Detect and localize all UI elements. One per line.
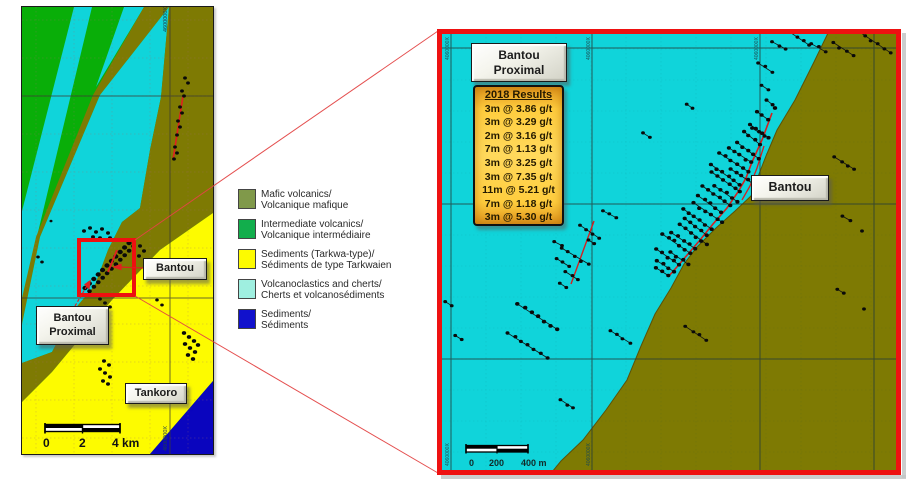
- svg-text:200: 200: [489, 458, 504, 468]
- svg-text:4060000X: 4060000X: [754, 37, 760, 60]
- svg-text:4600000X: 4600000X: [163, 7, 169, 32]
- svg-text:0: 0: [469, 458, 474, 468]
- svg-text:4060000X: 4060000X: [445, 37, 451, 60]
- svg-text:2: 2: [79, 436, 86, 450]
- svg-text:400 m: 400 m: [521, 458, 547, 468]
- svg-text:0: 0: [43, 436, 50, 450]
- svg-text:4060000X: 4060000X: [586, 37, 592, 60]
- svg-text:4060000X: 4060000X: [586, 443, 592, 466]
- svg-text:4600000X: 4600000X: [163, 426, 169, 451]
- svg-text:4 km: 4 km: [112, 436, 139, 450]
- svg-text:4060000X: 4060000X: [445, 443, 451, 466]
